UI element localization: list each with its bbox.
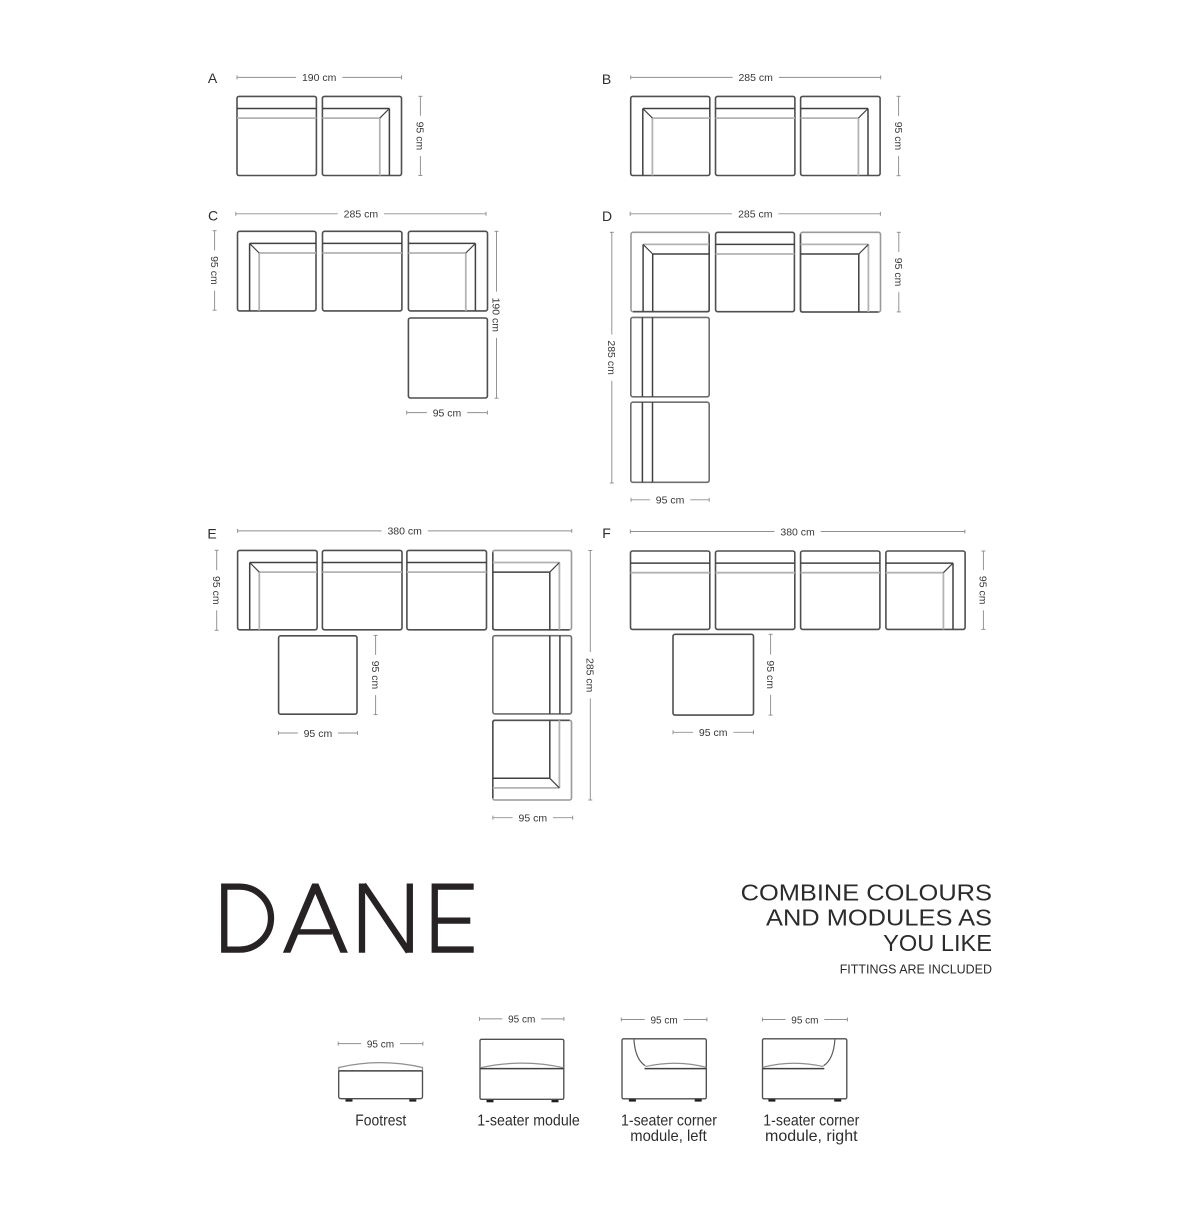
svg-text:95 cm: 95 cm: [433, 407, 462, 419]
svg-text:285 cm: 285 cm: [584, 658, 596, 693]
svg-text:95 cm: 95 cm: [508, 1015, 535, 1026]
svg-text:95 cm: 95 cm: [210, 576, 222, 605]
svg-text:95 cm: 95 cm: [369, 661, 381, 690]
svg-text:95 cm: 95 cm: [414, 122, 426, 151]
svg-text:95 cm: 95 cm: [764, 660, 776, 689]
svg-text:285 cm: 285 cm: [605, 340, 617, 375]
svg-text:285 cm: 285 cm: [344, 209, 379, 221]
svg-text:285 cm: 285 cm: [738, 72, 773, 84]
svg-text:1-seater corner: 1-seater corner: [763, 1113, 860, 1130]
svg-text:95 cm: 95 cm: [892, 258, 904, 287]
svg-text:285 cm: 285 cm: [738, 209, 773, 221]
svg-text:95 cm: 95 cm: [304, 728, 333, 740]
svg-text:190 cm: 190 cm: [490, 298, 502, 333]
svg-text:1-seater corner: 1-seater corner: [621, 1113, 718, 1130]
svg-text:F: F: [602, 525, 611, 541]
svg-text:95 cm: 95 cm: [367, 1039, 394, 1050]
svg-text:FITTINGS ARE INCLUDED: FITTINGS ARE INCLUDED: [840, 962, 992, 977]
svg-text:YOU LIKE: YOU LIKE: [883, 930, 992, 956]
svg-text:AND MODULES AS: AND MODULES AS: [766, 905, 992, 931]
svg-text:95 cm: 95 cm: [977, 576, 989, 605]
svg-text:380 cm: 380 cm: [780, 526, 815, 538]
svg-text:module, left: module, left: [630, 1128, 707, 1145]
svg-text:380 cm: 380 cm: [387, 526, 422, 538]
svg-text:Footrest: Footrest: [355, 1113, 406, 1130]
svg-text:95 cm: 95 cm: [208, 256, 220, 285]
svg-text:B: B: [602, 71, 611, 87]
svg-text:C: C: [208, 208, 218, 224]
svg-text:95 cm: 95 cm: [650, 1015, 677, 1026]
svg-text:module, right: module, right: [765, 1128, 858, 1145]
svg-text:190 cm: 190 cm: [302, 72, 337, 84]
svg-text:95 cm: 95 cm: [699, 727, 728, 739]
svg-text:E: E: [207, 526, 216, 542]
svg-text:1-seater module: 1-seater module: [477, 1113, 580, 1130]
svg-text:A: A: [208, 70, 218, 86]
svg-text:D: D: [602, 208, 612, 224]
svg-text:95 cm: 95 cm: [791, 1015, 818, 1026]
svg-text:95 cm: 95 cm: [656, 495, 685, 507]
svg-text:95 cm: 95 cm: [892, 122, 904, 151]
svg-text:COMBINE COLOURS: COMBINE COLOURS: [741, 879, 992, 905]
svg-text:95 cm: 95 cm: [519, 813, 548, 825]
